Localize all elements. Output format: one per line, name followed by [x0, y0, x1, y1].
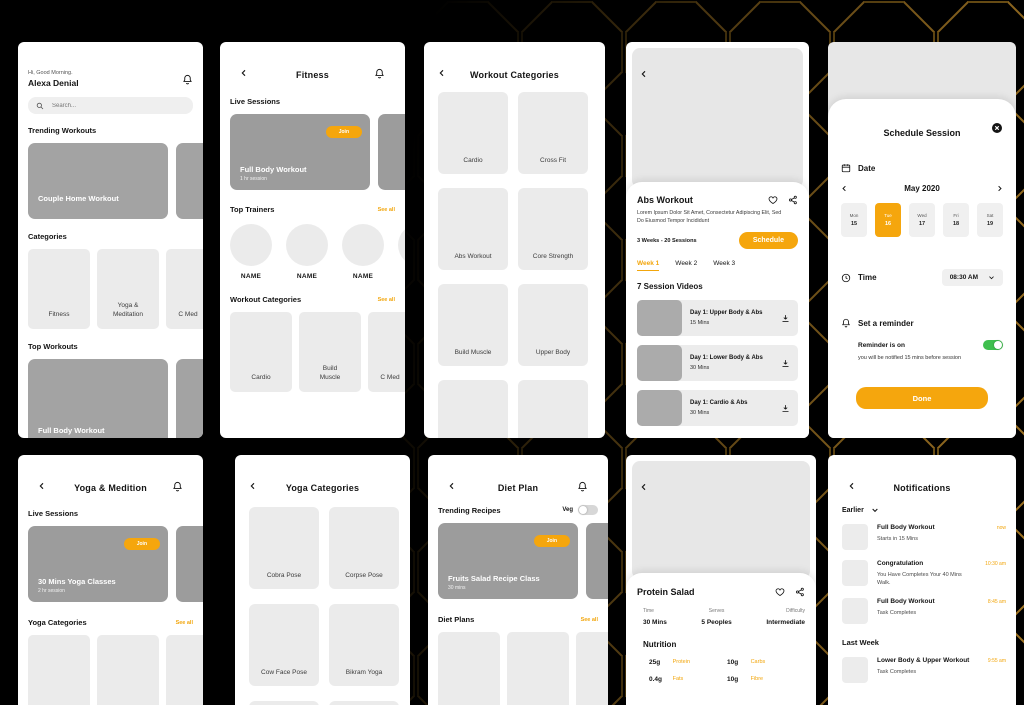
trainer-avatar — [398, 224, 405, 266]
back-icon[interactable] — [640, 483, 648, 491]
section-title-top-workouts: Top Workouts — [28, 342, 78, 351]
workout-meta: 3 Weeks - 20 Sessions — [637, 238, 697, 244]
notification-thumbnail — [842, 560, 868, 586]
category-tile-partial[interactable]: C Med — [166, 249, 203, 329]
share-icon[interactable] — [788, 195, 798, 205]
day-cell[interactable]: Sat 19 — [977, 203, 1003, 237]
workout-category-tile[interactable]: Cardio — [438, 92, 508, 174]
month-label: May 2020 — [904, 184, 940, 193]
notification-thumbnail — [842, 524, 868, 550]
favorite-icon[interactable] — [768, 195, 778, 205]
bell-icon[interactable] — [172, 481, 183, 492]
trainer-avatar — [230, 224, 272, 266]
notification-item[interactable]: Congratulation You Have Completes Your 4… — [838, 560, 1006, 588]
workout-category-tile-partial[interactable] — [518, 380, 588, 438]
workout-category-tile[interactable]: Upper Body — [518, 284, 588, 366]
section-title-live-sessions: Live Sessions — [230, 97, 280, 106]
trainer-name: NAME — [297, 273, 317, 280]
video-title: Day 1: Lower Body & Abs — [690, 355, 781, 361]
top-card-title: Full Body Workout — [38, 426, 105, 435]
session-videos-title: 7 Session Videos — [637, 282, 798, 291]
video-duration: 30 Mins — [690, 410, 781, 416]
phone-screen-abs-workout: Abs Workout Lorem Ipsum Dolor Sit Amet, … — [626, 42, 809, 438]
reminder-toggle[interactable] — [983, 340, 1003, 350]
meta-value-time: 30 Mins — [643, 619, 667, 626]
see-all-link[interactable]: See all — [378, 297, 395, 303]
phone-screen-home: Hi, Good Morning. Alexa Denial Trending … — [18, 42, 203, 438]
meta-value-difficulty: Intermediate — [766, 619, 805, 626]
recipe-title: Protein Salad — [637, 587, 695, 597]
workout-hero-image — [632, 48, 803, 188]
day-name: Fri — [953, 213, 958, 218]
phone-screen-workout-categories: Workout Categories Cardio Cross Fit Abs … — [424, 42, 605, 438]
yoga-category-tile[interactable]: Bikram Yoga — [329, 604, 399, 686]
category-tile-partial[interactable]: C Med — [368, 312, 405, 392]
notification-time: 9:55 am — [988, 657, 1006, 683]
search-bar[interactable] — [28, 97, 193, 114]
section-title-workout-categories: Workout Categories — [230, 295, 301, 304]
category-label: Build Muscle — [313, 364, 347, 393]
day-cell[interactable]: Wed 17 — [909, 203, 935, 237]
yoga-category-tile-partial[interactable] — [166, 635, 203, 705]
nutrition-amount: 10g — [727, 659, 751, 666]
see-all-link[interactable]: See all — [581, 617, 598, 623]
reminder-bell-icon — [841, 318, 851, 328]
back-icon[interactable] — [38, 482, 46, 490]
phone-screen-fitness: Fitness Live Sessions Join Full Body Wor… — [220, 42, 405, 438]
day-name: Tue — [884, 213, 892, 218]
schedule-button[interactable]: Schedule — [739, 232, 798, 249]
video-thumbnail — [637, 345, 682, 381]
prev-month-icon[interactable] — [841, 185, 848, 192]
notification-time: 8:45 am — [988, 598, 1006, 624]
time-dropdown[interactable]: 08:30 AM — [942, 269, 1003, 286]
meta-label-serves: Serves — [709, 608, 725, 614]
trainer-avatar — [342, 224, 384, 266]
section-title-trending-recipes: Trending Recipes — [438, 506, 501, 515]
trending-recipe-card[interactable]: Join Fruits Salad Recipe Class 30 mins — [438, 523, 578, 599]
day-name: Wed — [917, 213, 926, 218]
day-number: 19 — [987, 221, 993, 227]
back-icon[interactable] — [249, 482, 257, 490]
trainer-avatar — [286, 224, 328, 266]
video-title: Day 1: Upper Body & Abs — [690, 310, 781, 316]
yoga-category-tile-partial[interactable] — [249, 701, 319, 705]
back-icon[interactable] — [640, 70, 648, 78]
page-title: Yoga Categories — [286, 483, 359, 493]
yoga-category-tile-partial[interactable] — [97, 635, 159, 705]
date-label: Date — [858, 164, 875, 173]
notification-title: Full Body Workout — [877, 524, 997, 531]
reminder-title: Set a reminder — [858, 319, 914, 328]
section-title-trending-workouts: Trending Workouts — [28, 126, 96, 135]
trainer-name: NAME — [353, 273, 373, 280]
phone-screen-diet-plan: Diet Plan Trending Recipes Veg Join Frui… — [428, 455, 608, 705]
phone-screen-schedule-session: Schedule Session Date May 2020 — [828, 42, 1016, 438]
veg-toggle[interactable] — [578, 505, 598, 515]
live-card-subtitle: 2 hr session — [38, 588, 65, 594]
back-icon[interactable] — [438, 69, 446, 77]
chevron-down-icon — [988, 274, 995, 281]
tab-week-1[interactable]: Week 1 — [637, 260, 659, 271]
trainer-item[interactable]: NAME — [230, 224, 272, 280]
live-card-subtitle: 1 hr session — [240, 176, 267, 182]
meta-label-time: Time — [643, 608, 667, 614]
category-tile-yoga-meditation[interactable]: Yoga & Meditation — [97, 249, 159, 329]
time-value: 08:30 AM — [950, 274, 978, 281]
toggle-knob — [994, 341, 1002, 349]
notification-subtitle: Starts in 15 Mins — [877, 535, 997, 543]
top-workout-card-partial[interactable] — [176, 359, 203, 438]
clock-icon — [841, 273, 851, 283]
category-label: Abs Workout — [454, 253, 491, 270]
nutrition-label: Protein — [673, 659, 727, 666]
video-thumbnail — [637, 300, 682, 336]
nutrition-label: Fibre — [751, 676, 805, 683]
video-title: Day 1: Cardio & Abs — [690, 400, 781, 406]
yoga-category-tile-partial[interactable] — [329, 701, 399, 705]
session-video-row[interactable]: Day 1: Lower Body & Abs 30 Mins — [637, 345, 798, 381]
yoga-category-tile[interactable]: Corpse Pose — [329, 507, 399, 589]
veg-label: Veg — [562, 507, 573, 513]
category-label: Cross Fit — [540, 157, 566, 174]
day-cell[interactable]: Mon 15 — [841, 203, 867, 237]
nutrition-label: Carbs — [751, 659, 805, 666]
bell-icon[interactable] — [182, 74, 193, 85]
back-icon[interactable] — [448, 482, 456, 490]
category-label: Core Strength — [533, 253, 573, 270]
reminder-note: you will be notified 15 mins before sess… — [841, 355, 1003, 361]
recipe-detail-card: Protein Salad Time 30 Mins Serves — [626, 573, 816, 705]
category-label: Yoga & Meditation — [106, 301, 150, 330]
trending-recipe-card-partial[interactable] — [586, 523, 608, 599]
reminder-status: Reminder is on — [858, 342, 905, 349]
session-video-row[interactable]: Day 1: Cardio & Abs 30 Mins — [637, 390, 798, 426]
meta-value-serves: 5 Peoples — [701, 619, 731, 626]
tab-week-2[interactable]: Week 2 — [675, 260, 697, 271]
day-number: 16 — [885, 221, 891, 227]
next-month-icon[interactable] — [996, 185, 1003, 192]
diet-plan-tile-partial[interactable] — [507, 632, 569, 705]
workout-title: Abs Workout — [637, 195, 693, 205]
recipe-card-subtitle: 30 mins — [448, 585, 466, 591]
search-icon — [36, 102, 44, 110]
workout-category-tile[interactable]: Cross Fit — [518, 92, 588, 174]
favorite-icon[interactable] — [775, 587, 785, 597]
notification-title: Lower Body & Upper Workout — [877, 657, 988, 664]
nutrition-amount: 10g — [727, 676, 751, 683]
greeting-text: Hi, Good Morning. — [28, 70, 79, 76]
trainer-item[interactable]: NAME — [286, 224, 328, 280]
notification-thumbnail — [842, 657, 868, 683]
category-tile-cardio[interactable]: Cardio — [230, 312, 292, 392]
toggle-knob — [579, 506, 587, 514]
join-button[interactable]: Join — [326, 126, 362, 138]
workout-category-tile[interactable]: Core Strength — [518, 188, 588, 270]
category-label: Cobra Pose — [267, 572, 301, 589]
page-title: Yoga & Medition — [74, 483, 147, 493]
live-card-title: 30 Mins Yoga Classes — [38, 577, 116, 586]
yoga-category-tile-partial[interactable] — [28, 635, 90, 705]
trending-workout-card[interactable]: Couple Home Workout — [28, 143, 168, 219]
day-cell-selected[interactable]: Tue 16 — [875, 203, 901, 237]
trainer-item[interactable]: NAME — [342, 224, 384, 280]
download-icon[interactable] — [781, 359, 798, 368]
workout-description: Lorem Ipsum Dolor Sit Amet, Consectetur … — [637, 209, 787, 225]
back-icon[interactable] — [240, 69, 248, 77]
recipe-hero-image — [632, 461, 810, 579]
phone-screen-yoga-meditation: Yoga & Medition Live Sessions Join 30 Mi… — [18, 455, 203, 705]
tab-week-3[interactable]: Week 3 — [713, 260, 735, 271]
trainer-item-partial[interactable] — [398, 224, 405, 280]
recipe-card-title: Fruits Salad Recipe Class — [448, 574, 540, 583]
download-icon[interactable] — [781, 404, 798, 413]
notification-time: now — [997, 524, 1006, 550]
video-duration: 30 Mins — [690, 365, 781, 371]
see-all-link[interactable]: See all — [176, 620, 193, 626]
live-session-card[interactable]: Join 30 Mins Yoga Classes 2 hr session — [28, 526, 168, 602]
calendar-icon — [841, 163, 851, 173]
user-name: Alexa Denial — [28, 78, 79, 88]
video-duration: 15 Mins — [690, 320, 781, 326]
notification-thumbnail — [842, 598, 868, 624]
section-title-live-sessions: Live Sessions — [28, 509, 78, 518]
section-title-top-trainers: Top Trainers — [230, 205, 274, 214]
workout-category-tile-partial[interactable] — [438, 380, 508, 438]
notification-item[interactable]: Full Body Workout Task Completes 8:45 am — [838, 598, 1006, 624]
search-input[interactable] — [50, 102, 185, 110]
section-title-categories: Categories — [28, 232, 67, 241]
meta-label-difficulty: Difficulty — [786, 608, 805, 614]
notification-time: 10:30 am — [985, 560, 1006, 588]
page-title: Notifications — [893, 483, 950, 493]
notification-item[interactable]: Full Body Workout Starts in 15 Mins now — [838, 524, 1006, 550]
category-label: Build Muscle — [455, 349, 492, 366]
back-icon[interactable] — [848, 482, 856, 490]
workout-category-tile[interactable]: Build Muscle — [438, 284, 508, 366]
category-label: Corpse Pose — [345, 572, 383, 589]
category-label: Upper Body — [536, 349, 570, 366]
bell-icon[interactable] — [374, 68, 385, 79]
nutrition-title: Nutrition — [643, 640, 805, 649]
notification-title: Full Body Workout — [877, 598, 988, 605]
yoga-category-tile[interactable]: Cobra Pose — [249, 507, 319, 589]
live-session-card[interactable]: Join Full Body Workout 1 hr session — [230, 114, 370, 190]
page-title: Diet Plan — [498, 483, 538, 493]
design-board: Hi, Good Morning. Alexa Denial Trending … — [0, 0, 1024, 705]
notification-title: Congratulation — [877, 560, 985, 567]
phone-screen-notifications: Notifications Earlier Full Body Workout … — [828, 455, 1016, 705]
yoga-category-tile[interactable]: Cow Face Pose — [249, 604, 319, 686]
category-tile-build-muscle[interactable]: Build Muscle — [299, 312, 361, 392]
page-title: Workout Categories — [470, 70, 559, 80]
trainer-name: NAME — [241, 273, 261, 280]
category-label: Bikram Yoga — [346, 669, 383, 686]
day-number: 15 — [851, 221, 857, 227]
section-title-yoga-categories: Yoga Categories — [28, 618, 87, 627]
category-label: Cardio — [251, 373, 270, 392]
top-workout-card[interactable]: Full Body Workout — [28, 359, 168, 438]
category-label: Cow Face Pose — [261, 669, 307, 686]
workout-detail-card: Abs Workout Lorem Ipsum Dolor Sit Amet, … — [626, 182, 809, 438]
day-number: 17 — [919, 221, 925, 227]
day-name: Sat — [987, 213, 994, 218]
share-icon[interactable] — [795, 587, 805, 597]
nutrition-amount: 0.4g — [649, 676, 673, 683]
nutrition-amount: 25g — [649, 659, 673, 666]
notification-subtitle: You Have Completes Your 40 Mins Walk. — [877, 571, 969, 588]
time-label: Time — [858, 273, 877, 282]
done-button[interactable]: Done — [856, 387, 988, 409]
category-tile-fitness[interactable]: Fitness — [28, 249, 90, 329]
notification-item[interactable]: Lower Body & Upper Workout Task Complete… — [838, 657, 1006, 683]
category-label: C Med — [177, 310, 199, 329]
see-all-link[interactable]: See all — [378, 207, 395, 213]
notification-subtitle: Task Completes — [877, 668, 988, 676]
last-week-label: Last Week — [838, 638, 1006, 647]
diet-plan-tile-partial[interactable] — [576, 632, 608, 705]
modal-title: Schedule Session — [883, 128, 960, 138]
join-button[interactable]: Join — [124, 538, 160, 550]
day-cell[interactable]: Fri 18 — [943, 203, 969, 237]
section-title-diet-plans: Diet Plans — [438, 615, 474, 624]
day-number: 18 — [953, 221, 959, 227]
join-button[interactable]: Join — [534, 535, 570, 547]
category-label: Fitness — [49, 310, 70, 329]
diet-plan-tile-partial[interactable] — [438, 632, 500, 705]
live-card-title: Full Body Workout — [240, 165, 307, 174]
page-title: Fitness — [296, 70, 329, 80]
trending-workout-card-partial[interactable] — [176, 143, 203, 219]
notification-subtitle: Task Completes — [877, 609, 988, 617]
trending-card-title: Couple Home Workout — [38, 194, 119, 203]
day-name: Mon — [850, 213, 859, 218]
chevron-down-icon[interactable] — [871, 506, 879, 514]
phone-screen-protein-salad: Protein Salad Time 30 Mins Serves — [626, 455, 816, 705]
workout-category-tile[interactable]: Abs Workout — [438, 188, 508, 270]
category-label: Cardio — [463, 157, 482, 174]
live-session-card-partial[interactable] — [176, 526, 203, 602]
bell-icon[interactable] — [577, 481, 588, 492]
live-session-card-partial[interactable] — [378, 114, 405, 190]
nutrition-label: Fats — [673, 676, 727, 683]
filter-label: Earlier — [842, 507, 864, 514]
session-video-row[interactable]: Day 1: Upper Body & Abs 15 Mins — [637, 300, 798, 336]
close-icon[interactable] — [991, 122, 1003, 134]
category-label: C Med — [379, 373, 401, 392]
phone-screen-yoga-categories: Yoga Categories Cobra Pose Corpse Pose C… — [235, 455, 410, 705]
video-thumbnail — [637, 390, 682, 426]
download-icon[interactable] — [781, 314, 798, 323]
schedule-modal: Schedule Session Date May 2020 — [828, 99, 1016, 438]
